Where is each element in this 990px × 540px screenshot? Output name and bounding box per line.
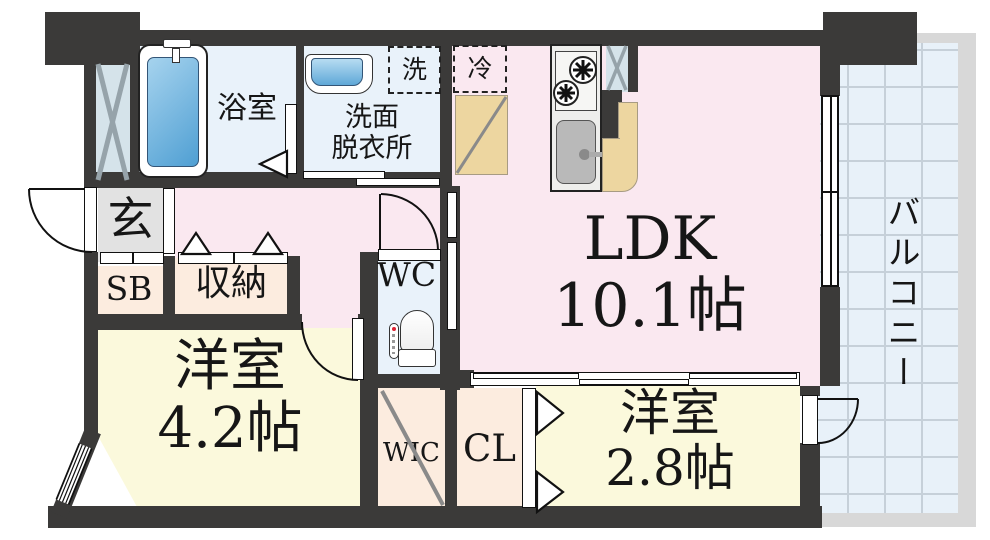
hallway-extension-floor: [298, 258, 360, 330]
hall-ldk-door: [447, 192, 457, 238]
closet-label: CL: [457, 430, 522, 468]
bathroom-label: 浴室: [200, 94, 294, 125]
western-room2-label: 洋室 2.8帖: [542, 386, 798, 496]
wall-segment: [820, 287, 840, 386]
wall-segment: [88, 30, 840, 46]
balcony-label: バルコニー: [872, 165, 918, 425]
washer-label: 洗: [402, 57, 427, 83]
bath-faucet-stem: [172, 48, 180, 63]
refrigerator-label: 冷: [467, 56, 492, 82]
counter-box: [455, 95, 508, 175]
stove-icon: [555, 51, 597, 111]
ldk-label: LDK 10.1帖: [480, 206, 820, 340]
entrance-label: 玄: [98, 196, 163, 243]
western-room1-label: 洋室 4.2帖: [105, 336, 355, 459]
western-room1-name: 洋室: [105, 336, 355, 398]
closet-door-track: [522, 388, 536, 508]
balcony-door-leaf: [802, 395, 818, 445]
sink-bowl: [311, 58, 363, 86]
storage-label: 収納: [173, 266, 289, 303]
wall-segment: [628, 44, 638, 92]
western-room2-size: 2.8帖: [542, 441, 798, 496]
toilet-tank: [398, 349, 436, 367]
entrance-step: [100, 252, 164, 264]
entrance-jamb: [163, 188, 175, 254]
washroom-label: 洗面 脱衣所: [302, 102, 442, 164]
wc-label: WC: [368, 258, 445, 292]
bath-faucet-icon: [163, 39, 191, 48]
entrance-door-arc: [29, 189, 92, 252]
western-room2-name: 洋室: [542, 386, 798, 441]
refrigerator-space: 冷: [453, 45, 507, 93]
wall-segment: [48, 506, 822, 528]
toilet-control-light: [392, 327, 396, 331]
pipe-space-kitchen: [606, 44, 628, 92]
balcony-window: [821, 95, 839, 287]
wall-segment: [445, 388, 457, 508]
western-room1-size: 4.2帖: [105, 398, 355, 460]
ldk-partition-panel: [473, 373, 579, 379]
washroom-label-line2: 脱衣所: [302, 133, 442, 164]
entrance-door-leaf: [84, 187, 97, 252]
shoe-box-label: SB: [95, 272, 163, 306]
wall-segment: [84, 46, 96, 188]
wall-segment: [363, 374, 460, 388]
toilet-icon: [400, 310, 434, 352]
washer-space: 洗: [388, 46, 441, 94]
ldk-size: 10.1帖: [480, 273, 820, 340]
pipe-space: [95, 62, 130, 182]
faucet-stub: [589, 152, 602, 157]
ldk-partition-panel: [689, 373, 797, 379]
floor-plan: バルコニー: [0, 0, 990, 540]
toilet-control-dots: [392, 334, 395, 354]
wic-label: WIC: [378, 440, 445, 467]
ldk-name: LDK: [480, 206, 820, 273]
kitchen-counter: [602, 138, 620, 192]
hall-ldk-door: [447, 242, 457, 330]
washroom-sliding-door: [356, 178, 440, 186]
kitchen-counter: [618, 102, 638, 192]
diagonal-window: [59, 445, 88, 504]
washroom-label-line1: 洗面: [302, 102, 442, 133]
wall-segment: [84, 314, 302, 330]
wall-segment: [820, 46, 840, 96]
diagonal-wall: [59, 431, 93, 515]
wall-segment: [800, 443, 820, 508]
bathtub-water: [147, 57, 199, 167]
